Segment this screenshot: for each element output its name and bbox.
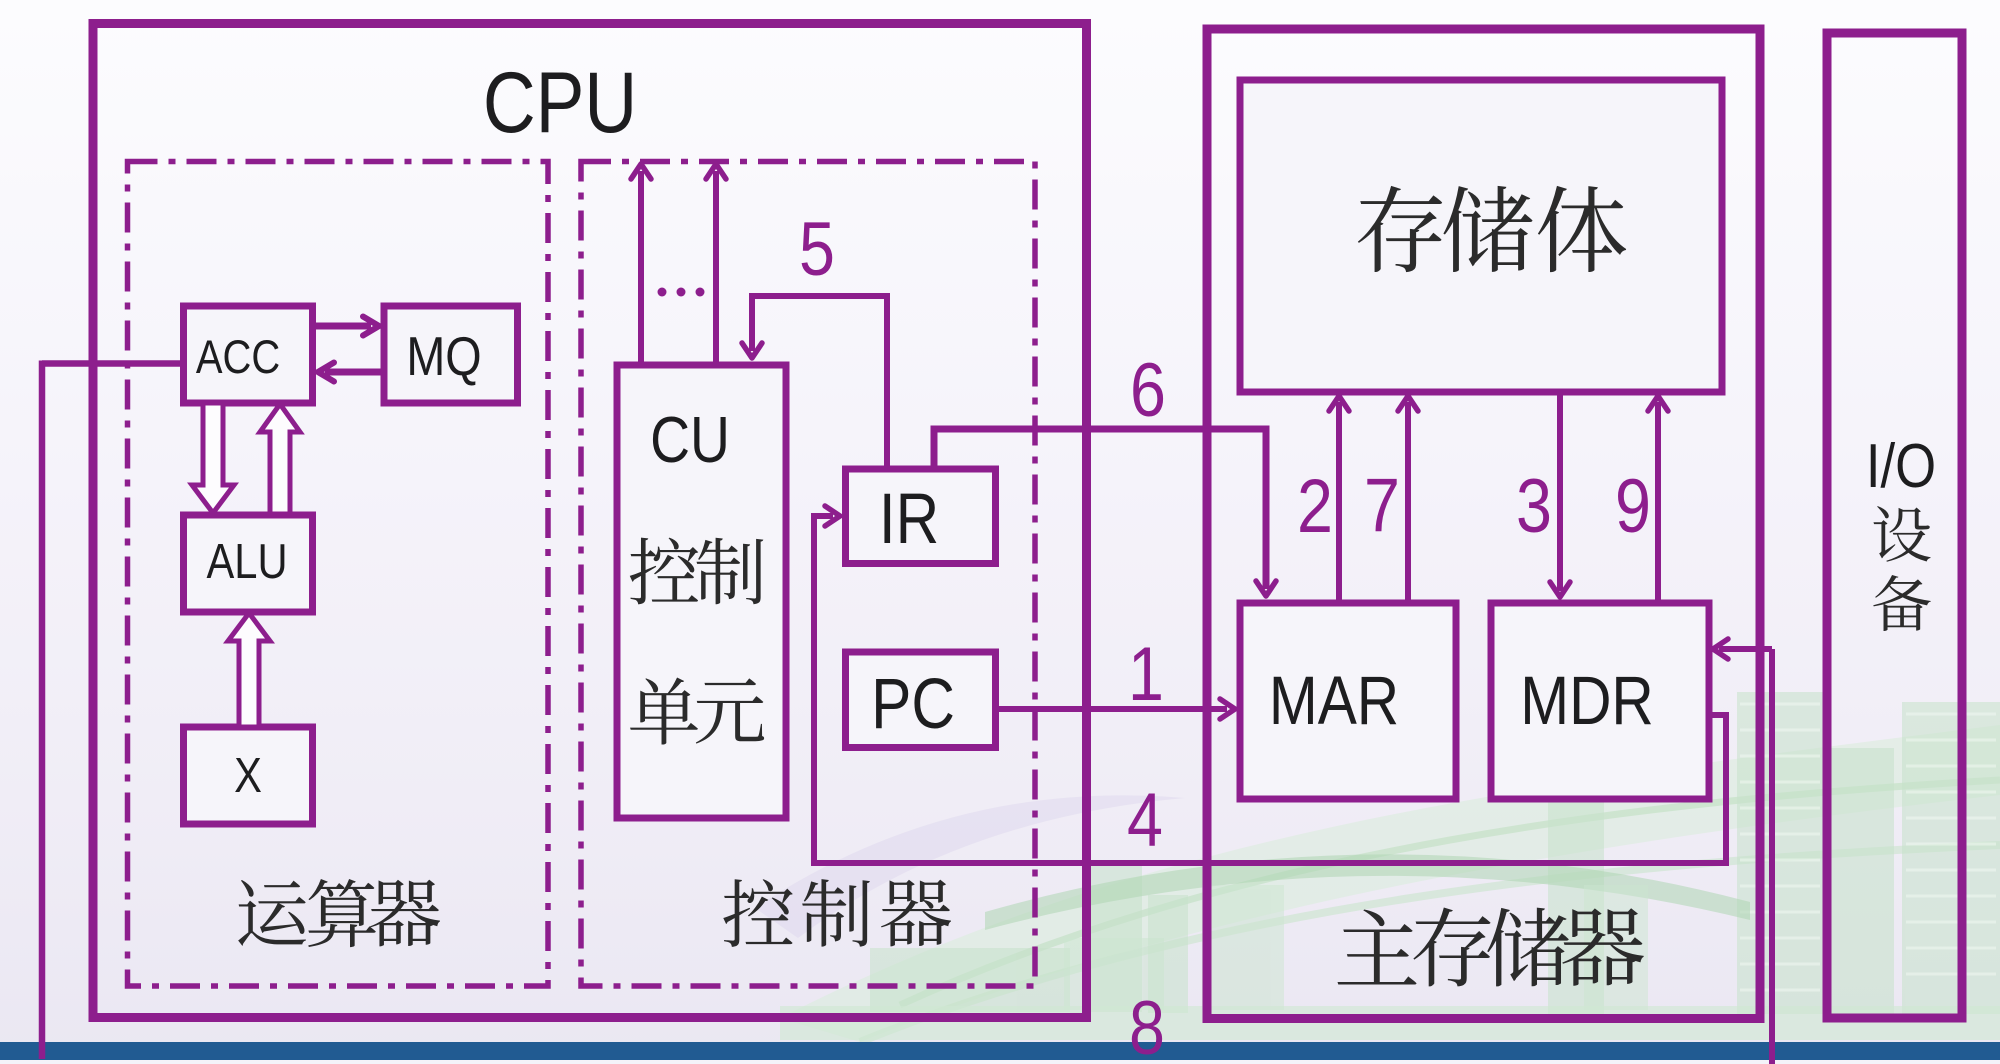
svg-text:ALU: ALU: [206, 534, 287, 589]
svg-text:CPU: CPU: [483, 54, 637, 150]
svg-text:4: 4: [1127, 777, 1163, 862]
svg-text:I/O: I/O: [1866, 432, 1936, 501]
svg-text:7: 7: [1364, 462, 1400, 547]
svg-text:1: 1: [1128, 631, 1164, 716]
svg-text:MDR: MDR: [1520, 662, 1654, 740]
svg-text:PC: PC: [871, 663, 955, 743]
svg-text:5: 5: [799, 206, 835, 291]
svg-text:X: X: [234, 748, 262, 803]
svg-text:3: 3: [1516, 463, 1552, 548]
svg-text:2: 2: [1297, 463, 1333, 548]
svg-text:8: 8: [1129, 985, 1165, 1064]
svg-text:6: 6: [1130, 347, 1166, 432]
svg-text:IR: IR: [879, 478, 939, 558]
svg-text:MAR: MAR: [1269, 662, 1399, 740]
svg-text:CU: CU: [650, 403, 730, 476]
svg-text:MQ: MQ: [406, 325, 481, 386]
svg-text:ACC: ACC: [196, 332, 280, 384]
svg-text:9: 9: [1615, 463, 1651, 548]
